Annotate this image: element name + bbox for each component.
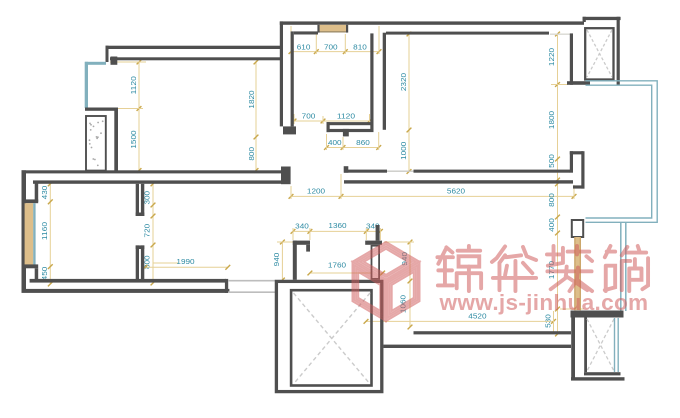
svg-text:450: 450 (41, 267, 49, 281)
svg-text:810: 810 (353, 43, 367, 51)
svg-text:5620: 5620 (447, 188, 465, 196)
svg-text:1120: 1120 (337, 112, 355, 120)
svg-text:1360: 1360 (328, 222, 346, 230)
svg-text:1820: 1820 (248, 90, 256, 108)
svg-text:800: 800 (248, 147, 256, 161)
svg-text:430: 430 (41, 186, 49, 200)
svg-text:300: 300 (143, 191, 151, 205)
svg-text:700: 700 (324, 43, 338, 51)
svg-text:2320: 2320 (400, 73, 408, 91)
svg-text:400: 400 (548, 218, 556, 232)
svg-text:1990: 1990 (176, 258, 194, 266)
svg-text:940: 940 (273, 253, 281, 267)
svg-text:860: 860 (356, 139, 370, 147)
svg-text:1800: 1800 (548, 111, 556, 129)
svg-text:1760: 1760 (328, 262, 346, 270)
svg-text:340: 340 (295, 223, 309, 231)
svg-text:800: 800 (548, 193, 556, 207)
svg-text:1220: 1220 (548, 48, 556, 66)
svg-text:1000: 1000 (400, 142, 408, 160)
svg-text:500: 500 (548, 154, 556, 168)
svg-text:400: 400 (328, 139, 342, 147)
svg-text:www.js-jinhua.com: www.js-jinhua.com (439, 290, 649, 315)
svg-text:1120: 1120 (130, 76, 138, 94)
svg-text:720: 720 (143, 224, 151, 238)
svg-text:1200: 1200 (307, 188, 325, 196)
svg-text:700: 700 (302, 112, 316, 120)
svg-text:1160: 1160 (41, 222, 49, 240)
svg-text:1500: 1500 (130, 130, 138, 148)
svg-text:610: 610 (297, 43, 311, 51)
